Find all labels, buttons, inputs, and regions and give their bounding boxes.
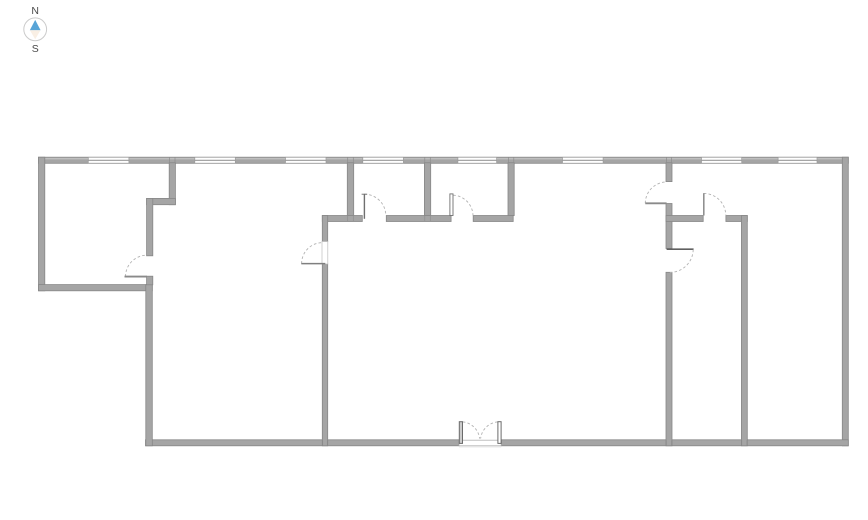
- svg-text:S: S: [32, 43, 39, 55]
- svg-text:N: N: [31, 5, 39, 17]
